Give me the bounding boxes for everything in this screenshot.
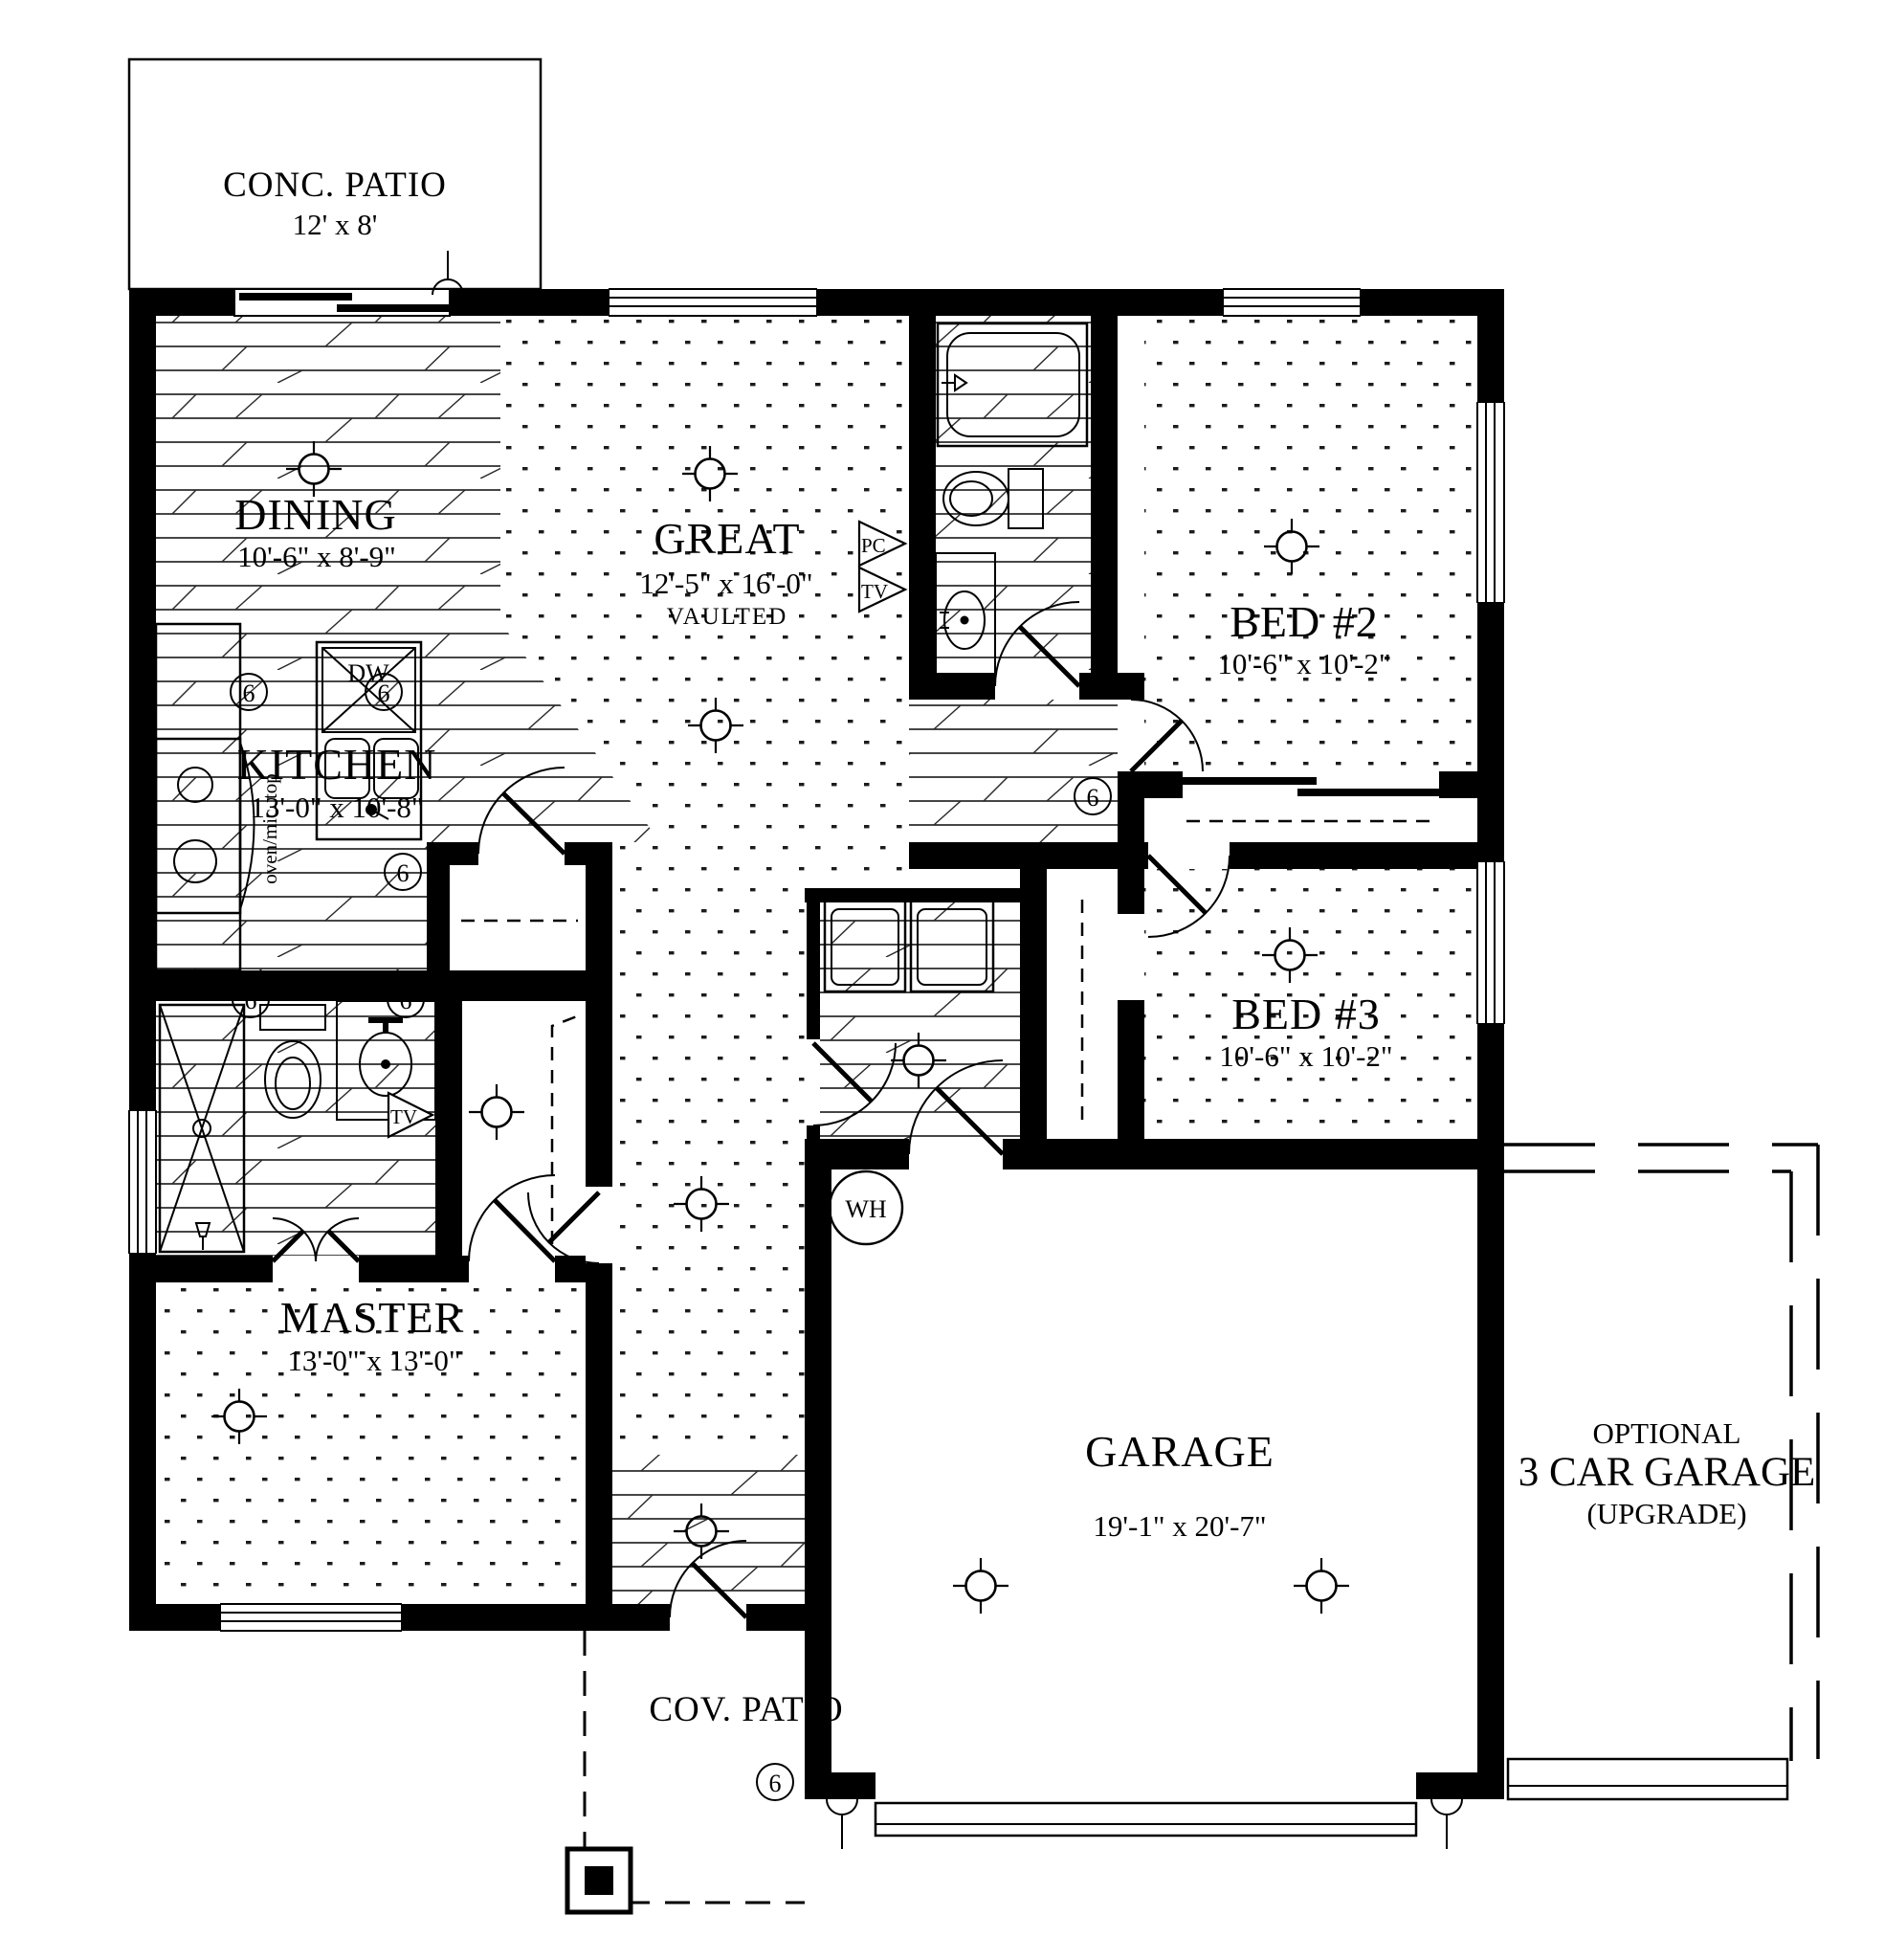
bed2-dims: 10'-6" x 10'-2" — [1217, 647, 1390, 680]
bed2-label: BED #2 — [1230, 597, 1379, 646]
svg-text:6: 6 — [1087, 784, 1099, 812]
garage-dims: 19'-1" x 20'-7" — [1093, 1509, 1266, 1543]
svg-text:TV: TV — [390, 1105, 417, 1128]
laundry-wood — [820, 902, 1020, 1139]
water-heater-label: WH — [845, 1195, 887, 1223]
bed3-side-window-icon — [1477, 861, 1504, 1024]
svg-text:6: 6 — [245, 987, 257, 1014]
bed-hall-wood — [909, 700, 1144, 842]
garage-label: GARAGE — [1085, 1427, 1274, 1476]
floor-plan: CONC. PATIO 12' x 8' oven/mic. top DW — [0, 0, 1884, 1960]
optional-garage-door-icon — [1508, 1759, 1787, 1799]
sliding-door-icon — [234, 289, 450, 316]
dining-dims: 10'-6" x 8'-9" — [237, 540, 396, 573]
svg-text:6: 6 — [243, 679, 255, 707]
master-closet-door — [469, 1175, 555, 1261]
svg-text:6: 6 — [769, 1770, 782, 1797]
optional-garage-line3: (UPGRADE) — [1586, 1497, 1746, 1530]
svg-text:PC: PC — [861, 534, 886, 557]
bed2-closet-slider-icon — [1183, 771, 1439, 798]
conc-patio-label: CONC. PATIO — [223, 166, 447, 205]
optional-garage-line2: 3 CAR GARAGE — [1518, 1450, 1816, 1495]
svg-text:6: 6 — [397, 859, 410, 887]
svg-text:6: 6 — [378, 679, 390, 707]
bed2-carpet — [1144, 316, 1477, 771]
great-window-icon — [609, 289, 817, 316]
bed2-top-window-icon — [1223, 289, 1361, 316]
bath-window-icon — [129, 1110, 156, 1254]
kitchen-label: KITCHEN — [237, 740, 437, 789]
optional-garage: OPTIONAL 3 CAR GARAGE (UPGRADE) — [1504, 1145, 1818, 1799]
optional-garage-line1: OPTIONAL — [1593, 1416, 1741, 1450]
svg-text:6: 6 — [400, 987, 412, 1014]
cov-patio-label: COV. PATIO — [649, 1690, 843, 1729]
master-dims: 13'-0" x 13'-0" — [287, 1344, 460, 1377]
master-window-icon — [220, 1604, 402, 1631]
great-note: VAULTED — [667, 604, 788, 630]
bed3-dims: 10'-6" x 10'-2" — [1219, 1039, 1392, 1073]
main-bath-wood — [936, 316, 1091, 673]
svg-text:TV: TV — [861, 580, 888, 603]
great-dims: 12'-5" x 16'-0" — [639, 567, 812, 600]
master-label: MASTER — [280, 1293, 465, 1342]
bed2-side-window-icon — [1477, 402, 1504, 603]
kitchen-dims: 13'-0" x 10'-8" — [250, 791, 423, 824]
cov-patio: COV. PATIO 6 — [567, 1631, 844, 1912]
conc-patio-dims: 12' x 8' — [293, 208, 378, 241]
dining-label: DINING — [234, 490, 397, 539]
great-label: GREAT — [654, 514, 800, 563]
conc-patio: CONC. PATIO 12' x 8' — [129, 59, 541, 289]
patio-post-icon — [567, 1849, 631, 1912]
bed3-label: BED #3 — [1231, 990, 1381, 1038]
floor-plan-drawing: CONC. PATIO 12' x 8' oven/mic. top DW — [0, 0, 1884, 1960]
can-light-cov-patio: 6 — [757, 1764, 793, 1800]
garage-door-icon — [876, 1803, 1416, 1836]
